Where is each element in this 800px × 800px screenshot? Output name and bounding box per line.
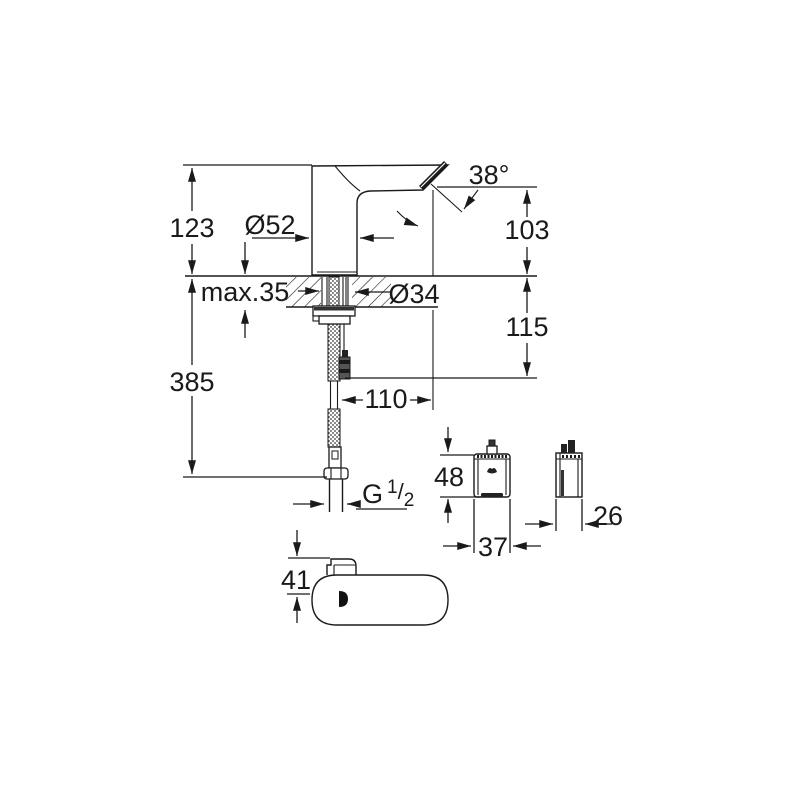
box-front-nipple-tip — [489, 440, 495, 446]
box-front-vent-ticks — [478, 455, 506, 458]
faucet-inner-contour — [335, 166, 360, 191]
cable-plug-band-2 — [339, 369, 350, 373]
dim-26-extension-lines — [556, 499, 582, 531]
dim-top-view-width-label: 41 — [281, 565, 311, 595]
box-side-shadow-line — [561, 470, 564, 496]
locknut-lower — [319, 316, 350, 324]
faucet-dimension-drawing: 123 385 Ø52 max.35 Ø34 38° 103 115 110 — [0, 0, 800, 800]
box-side-nipple-right — [568, 440, 575, 453]
shank-threaded-rod — [329, 277, 339, 306]
faucet-body — [312, 161, 462, 275]
technical-drawing-canvas: 123 385 Ø52 max.35 Ø34 38° 103 115 110 — [0, 0, 800, 800]
dim-box-depth-label: 26 — [593, 501, 623, 531]
sensor-window — [339, 591, 348, 607]
box-front-bottom-seam — [481, 493, 503, 497]
cable-plug-band-1 — [339, 360, 350, 364]
dim-box-height-label: 48 — [434, 462, 464, 492]
box-side-nipple-left — [561, 444, 567, 453]
water-flow-arc-arrow — [397, 211, 418, 226]
top-view-spout-tab — [327, 559, 356, 575]
deck-hatch-left — [286, 277, 321, 307]
box-front-outline — [474, 454, 510, 497]
dim-box-width-label: 37 — [478, 532, 508, 562]
hose-braid-lower — [328, 409, 340, 447]
thread-numerator: 1 — [387, 477, 398, 498]
locknut-knurl-band — [314, 307, 354, 311]
thread-nipple — [330, 479, 343, 512]
hose-break-section — [331, 381, 338, 409]
dim-outlet-height-label: 103 — [504, 215, 549, 245]
spout-outlet-face-highlight — [421, 163, 445, 187]
thread-prefix: G — [362, 479, 383, 509]
angle-reference-line — [431, 184, 462, 212]
top-view-body-outline — [312, 575, 448, 625]
hose-end-fitting-clip — [332, 451, 338, 459]
supply-hose — [324, 324, 350, 512]
cable-plug-tip — [342, 350, 348, 357]
top-view-spout-tab-detail — [334, 565, 356, 575]
angle-leader-arrow — [464, 190, 478, 209]
dim-hole-diameter-label: Ø34 — [388, 279, 439, 309]
thread-nut — [324, 468, 348, 479]
dim-spout-angle-label: 38° — [469, 160, 510, 190]
dim-spout-projection-label: 110 — [364, 384, 407, 414]
dim-max-deck-thickness-label: max.35 — [201, 277, 290, 307]
dim-height-above-deck-label: 123 — [169, 213, 214, 243]
faucet-top-view: 41 — [281, 530, 448, 625]
control-box-side-view: 26 — [525, 440, 623, 531]
thread-denominator: 2 — [404, 490, 415, 511]
hose-braid-upper — [328, 324, 340, 381]
dim-below-deck-height-label: 115 — [505, 312, 548, 342]
dim-total-below-deck-label: 385 — [169, 367, 214, 397]
box-front-nipple-base — [487, 446, 497, 454]
control-box-front-view: 48 37 — [434, 427, 541, 562]
dim-base-diameter-label: Ø52 — [244, 210, 295, 240]
dim-thread-label: G1/2 — [362, 477, 414, 511]
